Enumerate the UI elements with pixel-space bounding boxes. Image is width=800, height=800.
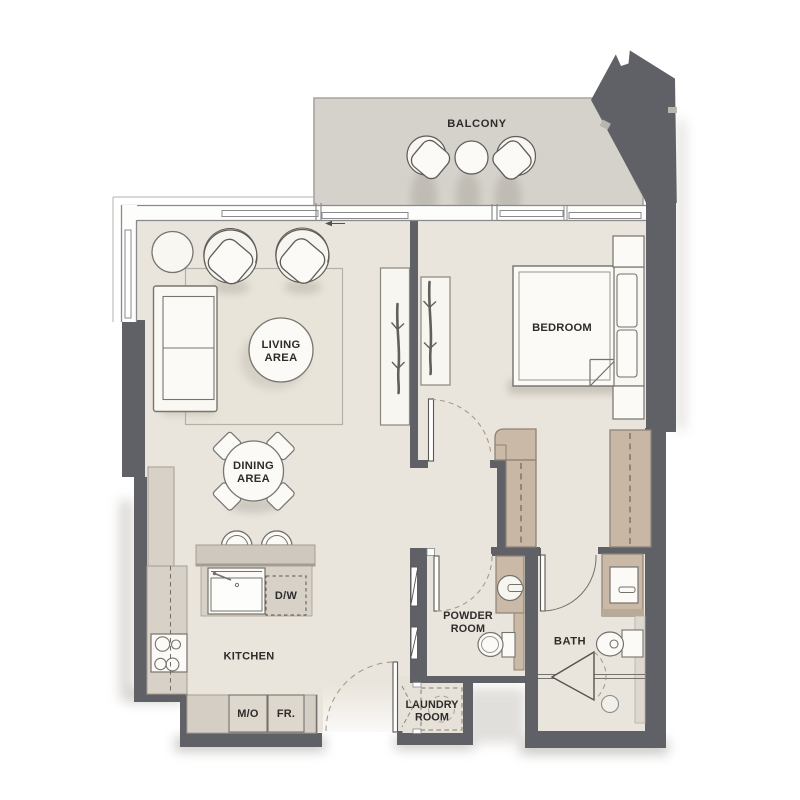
svg-text:LIVING: LIVING	[261, 339, 300, 351]
svg-text:FR.: FR.	[277, 708, 295, 720]
svg-text:AREA: AREA	[237, 473, 270, 485]
svg-text:POWDER: POWDER	[443, 610, 493, 622]
svg-text:BEDROOM: BEDROOM	[532, 322, 592, 334]
svg-text:AREA: AREA	[265, 352, 298, 364]
svg-text:KITCHEN: KITCHEN	[224, 651, 275, 663]
svg-text:DINING: DINING	[233, 460, 274, 472]
svg-text:BATH: BATH	[554, 636, 586, 648]
svg-text:ROOM: ROOM	[451, 623, 485, 635]
svg-text:ROOM: ROOM	[415, 712, 449, 724]
svg-text:D/W: D/W	[275, 590, 298, 602]
svg-text:LAUNDRY: LAUNDRY	[405, 699, 459, 711]
svg-text:M/O: M/O	[237, 708, 259, 720]
svg-text:BALCONY: BALCONY	[447, 118, 507, 130]
